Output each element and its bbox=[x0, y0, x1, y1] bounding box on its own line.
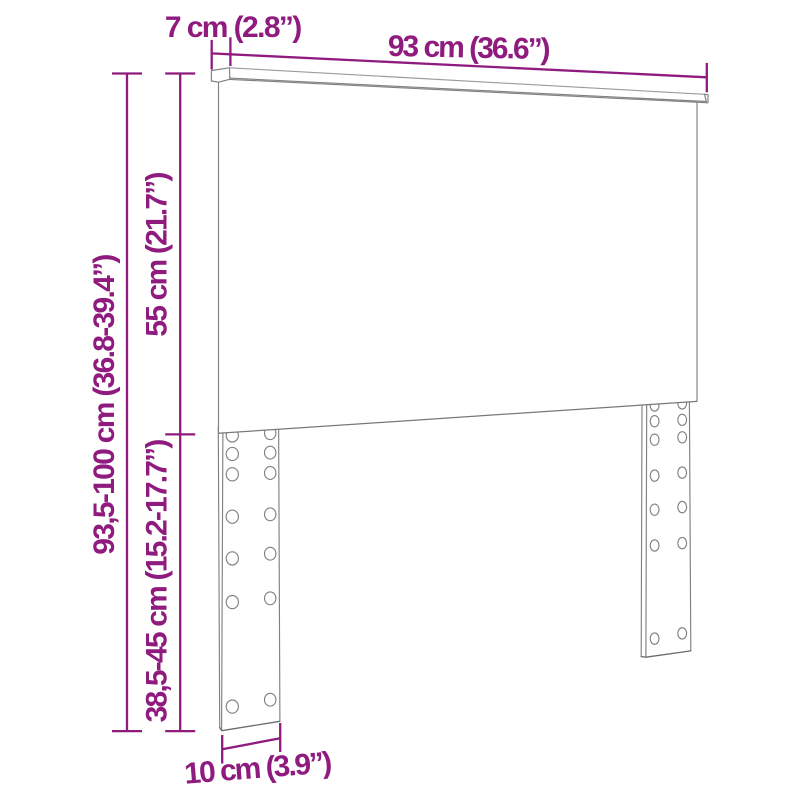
svg-text:93,5-100 cm (36.8-39.4”): 93,5-100 cm (36.8-39.4”) bbox=[88, 255, 121, 555]
svg-text:93 cm (36.6”): 93 cm (36.6”) bbox=[387, 30, 549, 66]
svg-text:38,5-45 cm (15.2-17.7”): 38,5-45 cm (15.2-17.7”) bbox=[140, 440, 173, 723]
svg-text:7 cm (2.8”): 7 cm (2.8”) bbox=[165, 11, 301, 44]
svg-text:55 cm (21.7”): 55 cm (21.7”) bbox=[140, 173, 173, 337]
